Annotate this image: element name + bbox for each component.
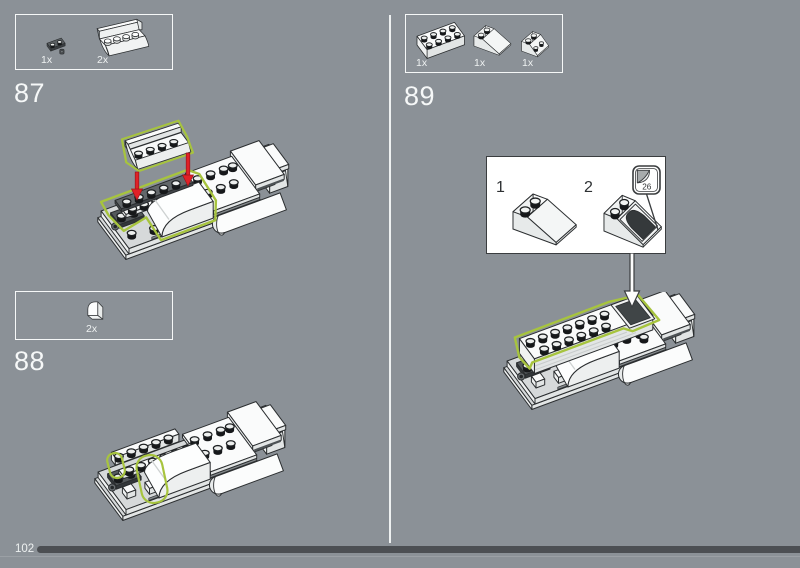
svg-text:26: 26 [642,183,652,192]
